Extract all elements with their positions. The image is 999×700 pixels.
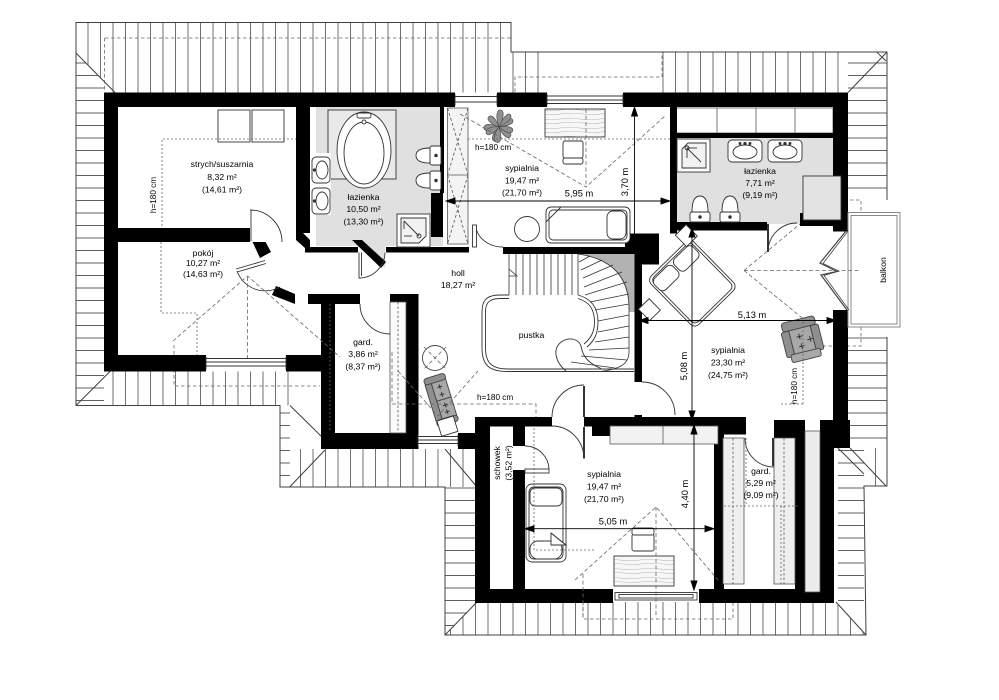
svg-text:balkon: balkon <box>878 257 888 283</box>
svg-text:(21,70 m²): (21,70 m²) <box>584 494 624 504</box>
svg-text:5,13 m: 5,13 m <box>738 310 767 320</box>
svg-text:sypialnia: sypialnia <box>505 163 539 173</box>
svg-text:18,27 m²: 18,27 m² <box>441 280 475 290</box>
svg-text:8,32 m²: 8,32 m² <box>207 172 237 182</box>
svg-text:23,30 m²: 23,30 m² <box>711 358 745 368</box>
svg-text:(13,30 m²): (13,30 m²) <box>343 217 383 227</box>
svg-text:łazienka: łazienka <box>348 192 380 202</box>
svg-text:sypialnia: sypialnia <box>711 345 745 355</box>
svg-text:holl: holl <box>451 268 465 278</box>
svg-text:10,50 m²: 10,50 m² <box>346 204 380 214</box>
svg-text:h=180 cm: h=180 cm <box>475 143 511 152</box>
svg-text:(3,52 m²): (3,52 m²) <box>504 445 514 480</box>
svg-text:3,70 m: 3,70 m <box>620 168 630 197</box>
svg-text:strych/suszarnia: strych/suszarnia <box>191 159 254 169</box>
svg-text:5,05 m: 5,05 m <box>599 517 628 527</box>
svg-text:10,27 m²: 10,27 m² <box>186 258 220 268</box>
svg-text:(9,09 m²): (9,09 m²) <box>743 490 778 500</box>
svg-text:pokój: pokój <box>193 248 214 258</box>
svg-text:schowek: schowek <box>492 445 502 479</box>
svg-text:h=180 cm: h=180 cm <box>477 393 513 402</box>
svg-text:pustka: pustka <box>519 330 545 340</box>
svg-text:5,29 m²: 5,29 m² <box>746 478 776 488</box>
svg-text:h=180 cm: h=180 cm <box>790 368 799 404</box>
svg-text:(24,75 m²): (24,75 m²) <box>708 370 748 380</box>
svg-text:4,40 m: 4,40 m <box>680 480 690 509</box>
svg-text:sypialnia: sypialnia <box>587 469 621 479</box>
svg-text:5,95 m: 5,95 m <box>565 189 594 199</box>
svg-text:7,71 m²: 7,71 m² <box>745 178 775 188</box>
svg-text:(9,19 m²): (9,19 m²) <box>742 190 777 200</box>
svg-text:5,08 m: 5,08 m <box>679 352 689 381</box>
svg-text:(8,37 m²): (8,37 m²) <box>345 362 380 372</box>
svg-text:łazienka: łazienka <box>744 166 776 176</box>
svg-text:(21,70 m²): (21,70 m²) <box>502 188 542 198</box>
svg-text:19,47 m²: 19,47 m² <box>587 482 621 492</box>
svg-text:gard.: gard. <box>353 337 373 347</box>
svg-text:(14,61 m²): (14,61 m²) <box>202 185 242 195</box>
svg-text:(14,63 m²): (14,63 m²) <box>183 269 223 279</box>
svg-text:gard.: gard. <box>751 466 771 476</box>
svg-text:19,47 m²: 19,47 m² <box>505 176 539 186</box>
svg-text:3,86 m²: 3,86 m² <box>348 349 378 359</box>
svg-text:h=180 cm: h=180 cm <box>149 177 158 213</box>
